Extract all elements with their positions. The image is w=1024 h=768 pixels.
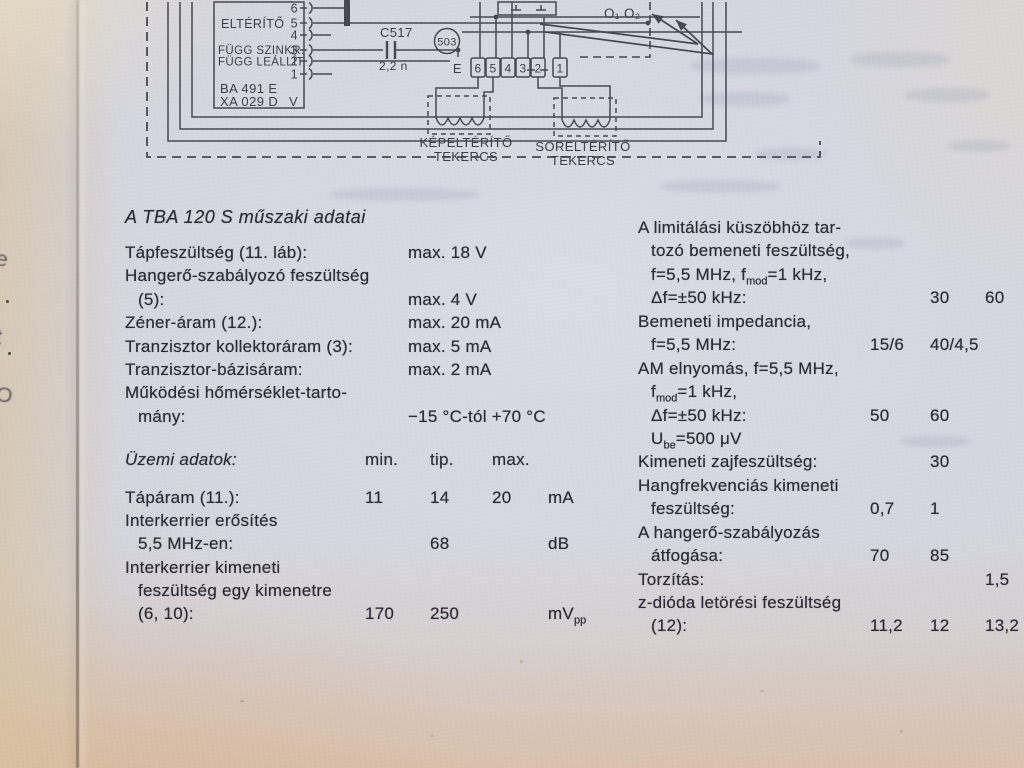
fiber-speck: [430, 735, 434, 737]
col-header-min: min.: [365, 448, 398, 471]
spec-label: Hangerő-szabályozó feszültség: [125, 266, 369, 285]
row-label: 5,5 MHz-en:: [138, 534, 233, 553]
value-max: 60: [985, 286, 1004, 309]
value-min: 70: [870, 544, 889, 567]
table-header-label: Üzemi adatok:: [125, 450, 237, 469]
value-tip: 12: [930, 614, 949, 637]
spec-row: Hangfrekvenciás kimeneti: [638, 474, 1018, 497]
value-tip: 85: [930, 544, 949, 567]
spec-value: max. 5 mA: [408, 335, 492, 358]
scanned-book-page: E 6 5 4 3 2 1 6 5 4 3 2 1 ELTÉRÍTŐ FÜGG …: [0, 0, 1024, 768]
spec-row: Tápfeszültség (11. láb):max. 18 V: [125, 241, 630, 264]
ic-labels: 6 5 4 3 2 1 ELTÉRÍTŐ FÜGG SZINKR. FÜGG L…: [218, 2, 305, 110]
ic-code-2: XA 029 D: [220, 94, 278, 109]
arrowhead-1: [652, 14, 664, 24]
spec-row: feszültség:0,71: [638, 497, 1018, 520]
output-labels: O₁ O₂: [604, 6, 641, 21]
fiber-speck: [760, 690, 764, 692]
table-row: Interkerrier kimeneti: [125, 556, 630, 579]
row-label: f=5,5 MHz:: [651, 335, 736, 354]
spec-label: Működési hőmérséklet-tarto-: [125, 383, 347, 402]
spec-label: mány:: [138, 407, 186, 426]
row-label: AM elnyomás, f=5,5 MHz,: [638, 359, 839, 378]
coil-left-caption-1: KÉPELTÉRÍTŐ: [419, 135, 512, 150]
bleed-smudge: [660, 180, 780, 193]
capacitor-value: 2,2 n: [379, 59, 408, 73]
row-label: feszültség egy kimenetre: [138, 581, 332, 600]
spec-row: Hangerő-szabályozó feszültség: [125, 264, 630, 287]
connector-strip: E 6 5 4 3 2 1: [453, 58, 567, 77]
strip-pin: 4: [504, 62, 511, 76]
row-label: z-dióda letörési feszültség: [638, 593, 841, 612]
spec-row: Működési hőmérséklet-tarto-: [125, 381, 630, 404]
circuit-diagram: E 6 5 4 3 2 1 6 5 4 3 2 1 ELTÉRÍTŐ FÜGG …: [0, 0, 1024, 175]
table-header: Üzemi adatok: min. tip. max.: [125, 448, 630, 471]
coil-winding-right: [562, 120, 610, 127]
edge-dot: [6, 300, 9, 303]
ic-label-fugg-szinkr: FÜGG SZINKR.: [218, 45, 305, 57]
value-tip: 68: [430, 532, 449, 555]
row-label: =1 kHz,: [768, 265, 828, 284]
value-unit: dB: [548, 532, 569, 555]
value-tip: 40/4,5: [930, 333, 979, 356]
spec-row: z-dióda letörési feszültség: [638, 591, 1018, 614]
spec-row: Torzítás:1,5: [638, 568, 1018, 591]
value-tip: 14: [430, 486, 449, 509]
table-row: feszültség egy kimenetre: [125, 579, 630, 602]
edge-glyph: t: [0, 326, 3, 351]
row-label: Δf=±50 kHz:: [651, 288, 747, 307]
spec-list: Tápfeszültség (11. láb):max. 18 V Hanger…: [125, 241, 630, 428]
coil-right-caption-2: TEKERCS: [551, 153, 615, 168]
spec-row: (12):11,21213,2: [638, 614, 1018, 637]
spec-value: max. 18 V: [408, 241, 487, 264]
spec-label: Tranzisztor kollektoráram (3):: [125, 337, 353, 356]
value-min: 170: [365, 602, 394, 625]
capacitor-symbol: [387, 41, 395, 59]
value-tip: 30: [930, 450, 949, 473]
edge-dot: [8, 352, 11, 355]
unit-subscript: pp: [574, 615, 586, 627]
bleed-smudge: [330, 188, 480, 201]
value-max: 1,5: [985, 568, 1009, 591]
strip-pin: 2: [534, 62, 541, 76]
strip-pin: 5: [489, 62, 496, 76]
spec-row: Δf=±50 kHz:3060: [638, 286, 1018, 309]
top-component: [498, 2, 556, 15]
row-label: (6, 10):: [138, 604, 194, 623]
ref-circle-number: 503: [437, 37, 457, 49]
spec-row: A limitálási küszöbhöz tar-: [638, 216, 1018, 239]
spec-row: A hangerő-szabályozás: [638, 521, 1018, 544]
table-row: 5,5 MHz-en:68dB: [125, 532, 630, 555]
value-max: 13,2: [985, 614, 1019, 637]
fiber-speck: [240, 700, 244, 702]
value-min: 11: [365, 486, 383, 509]
strip-e-label: E: [453, 61, 462, 76]
value-max: 20: [492, 486, 511, 509]
spec-row: (5):max. 4 V: [125, 288, 630, 311]
row-label: Interkerrier kimeneti: [125, 558, 280, 577]
spec-value: −15 °C-tól +70 °C: [408, 405, 546, 428]
row-label: feszültség:: [651, 499, 735, 518]
row-label: U: [651, 429, 664, 448]
ic-pin: 4: [291, 29, 298, 43]
value-tip: 30: [930, 286, 949, 309]
row-label: Kimeneti zajfeszültség:: [638, 452, 818, 471]
fiber-speck: [520, 660, 523, 663]
edge-glyph: e: [0, 247, 9, 272]
spec-row: Zéner-áram (12.):max. 20 mA: [125, 311, 630, 334]
row-label: Torzítás:: [638, 570, 705, 589]
row-label: átfogása:: [651, 546, 723, 565]
row-label: =500 μV: [676, 429, 742, 448]
spec-row: Tranzisztor-bázisáram:max. 2 mA: [125, 358, 630, 381]
spec-row: Δf=±50 kHz:5060: [638, 404, 1018, 427]
ic-pin: 1: [291, 68, 298, 82]
strip-pin: 6: [474, 62, 481, 76]
value-min: 15/6: [870, 333, 904, 356]
spec-row: Bemeneti impedancia,: [638, 310, 1018, 333]
coil-right-caption-1: SORELTÉRÍTŐ: [535, 139, 630, 154]
row-label: Hangfrekvenciás kimeneti: [638, 476, 839, 495]
ic-label-elterito: ELTÉRÍTŐ: [221, 16, 284, 31]
spec-row: Ube=500 μV: [638, 427, 1018, 450]
spec-label: Tranzisztor-bázisáram:: [125, 360, 303, 379]
spec-label: Zéner-áram (12.):: [125, 313, 262, 332]
value-min: 11,2: [870, 614, 903, 637]
edge-glyph: O: [0, 383, 14, 409]
section-heading: A TBA 120 S műszaki adatai: [125, 205, 630, 229]
spec-label: Tápfeszültség (11. láb):: [125, 243, 307, 262]
table-body: Tápáram (11.):111420mA Interkerrier erős…: [125, 486, 630, 626]
value-tip: 250: [430, 602, 459, 625]
spec-row: Kimeneti zajfeszültség:30: [638, 450, 1018, 473]
value-min: 50: [870, 404, 889, 427]
unit-text: mV: [548, 604, 574, 623]
capacitor-name: C517: [380, 25, 413, 40]
fiber-speck: [900, 730, 903, 733]
col-header-tip: tip.: [430, 448, 454, 471]
row-label: Δf=±50 kHz:: [651, 406, 747, 425]
circuit-diagram-svg: E 6 5 4 3 2 1 6 5 4 3 2 1 ELTÉRÍTŐ FÜGG …: [0, 0, 1024, 175]
spec-value: max. 4 V: [408, 288, 477, 311]
ic-pin: 6: [291, 2, 298, 16]
right-column: A limitálási küszöbhöz tar- tozó bemenet…: [638, 216, 1018, 638]
table-row: Interkerrier erősítés: [125, 509, 630, 532]
left-column: A TBA 120 S műszaki adatai Tápfeszültség…: [125, 205, 630, 626]
value-unit: mA: [548, 486, 574, 509]
row-label: tozó bemeneti feszültség,: [651, 241, 850, 260]
row-label: Interkerrier erősítés: [125, 511, 278, 530]
coil-winding-left: [436, 118, 484, 125]
spec-row: átfogása:7085: [638, 544, 1018, 567]
row-label: Bemeneti impedancia,: [638, 312, 811, 331]
spec-row: mány:−15 °C-tól +70 °C: [125, 405, 630, 428]
spec-row: f=5,5 MHz, fmod=1 kHz,: [638, 263, 1018, 286]
strip-pin: 1: [556, 62, 563, 76]
value-min: 0,7: [870, 497, 894, 520]
spec-value: max. 2 mA: [408, 358, 492, 381]
spec-row: tozó bemeneti feszültség,: [638, 239, 1018, 262]
row-label: Tápáram (11.):: [125, 488, 240, 507]
table-row: Tápáram (11.):111420mA: [125, 486, 630, 509]
spec-row: fmod=1 kHz,: [638, 380, 1018, 403]
row-label: A hangerő-szabályozás: [638, 523, 820, 542]
strip-pin: 3: [519, 62, 526, 76]
spec-label: (5):: [138, 290, 165, 309]
value-tip: 60: [930, 404, 949, 427]
ic-label-fugg-leallit: FÜGG LEÁLLÍT: [218, 56, 304, 69]
row-label: (12):: [651, 616, 687, 635]
value-unit: mVpp: [548, 602, 586, 633]
spec-row: Tranzisztor kollektoráram (3):max. 5 mA: [125, 335, 630, 358]
coil-left-caption-2: TEKERCS: [434, 149, 498, 164]
row-label: f=5,5 MHz, f: [651, 265, 746, 284]
row-label: =1 kHz,: [677, 382, 737, 401]
spec-value: max. 20 mA: [408, 311, 501, 334]
spec-row: AM elnyomás, f=5,5 MHz,: [638, 357, 1018, 380]
blocking-bar: [344, 0, 350, 26]
ic-corner-letter: V: [289, 94, 298, 109]
row-label: A limitálási küszöbhöz tar-: [638, 218, 841, 237]
col-header-max: max.: [492, 448, 530, 471]
spec-row: f=5,5 MHz:15/640/4,5: [638, 333, 1018, 356]
value-tip: 1: [930, 497, 940, 520]
table-row: (6, 10):170250mVpp: [125, 602, 630, 625]
